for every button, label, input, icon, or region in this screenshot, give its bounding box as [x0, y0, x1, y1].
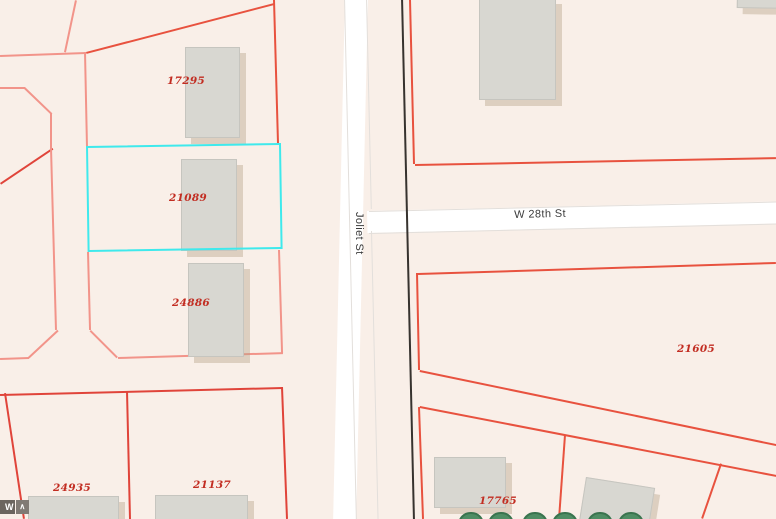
building-24886: [188, 263, 244, 357]
building-17295: [185, 47, 240, 138]
building-northeast: [479, 0, 556, 100]
parcel-boundary-line: [0, 357, 29, 360]
building-corner-ne: [737, 0, 776, 9]
parcel-boundary-line: [86, 3, 274, 53]
building-21137: [155, 495, 248, 519]
parcel-boundary-line: [410, 0, 416, 164]
parcel-label-17295: 17295: [167, 75, 205, 87]
chevron-up-icon: ∧: [19, 502, 25, 511]
parcel-label-17765: 17765: [479, 495, 517, 507]
parcel-boundary-line: [50, 113, 52, 148]
parcel-boundary-line: [559, 435, 566, 519]
parcel-boundary-line: [415, 157, 776, 165]
parcel-label-21137: 21137: [193, 479, 231, 491]
building-24935: [28, 496, 119, 519]
tree-symbol: [552, 512, 578, 519]
tree-symbol: [458, 512, 484, 519]
street-edge-line: [365, 0, 371, 209]
parcel-boundary-line: [417, 273, 421, 370]
parcel-boundary-line: [418, 262, 776, 275]
parcel-boundary-line: [0, 148, 53, 185]
street-edge-line: [371, 231, 379, 519]
tree-symbol: [488, 512, 514, 519]
parcel-boundary-line: [88, 252, 92, 330]
parcel-boundary-line: [702, 464, 722, 519]
parcel-boundary-line: [0, 387, 283, 396]
tree-symbol: [522, 512, 548, 519]
parcel-boundary-line: [51, 148, 57, 330]
parcel-boundary-line: [0, 52, 86, 57]
street-name-joliet: Joliet St: [353, 212, 365, 255]
parcel-label-21089: 21089: [169, 192, 207, 204]
panel-expand-button[interactable]: ∧: [16, 500, 29, 514]
parcel-label-24886: 24886: [172, 297, 210, 309]
parcel-boundary-line: [64, 0, 76, 52]
parcel-boundary-line: [419, 407, 425, 519]
utility-line: [401, 0, 415, 519]
street-name-w28th: W 28th St: [514, 208, 566, 221]
parcel-boundary-line: [28, 330, 58, 358]
panel-collapse-button[interactable]: W: [0, 500, 15, 514]
map-canvas[interactable]: 17295 21089 24886 21605 24935 21137 1776…: [0, 0, 776, 519]
parcel-boundary-line: [85, 52, 88, 146]
parcel-label-21605: 21605: [677, 343, 715, 355]
parcel-boundary-line: [281, 387, 288, 519]
parcel-boundary-line: [0, 87, 25, 89]
parcel-label-24935: 24935: [53, 482, 91, 494]
parcel-boundary-line: [279, 250, 284, 353]
building-southeast: [578, 477, 655, 519]
parcel-boundary-line: [420, 370, 776, 445]
parcel-boundary-line: [274, 0, 279, 143]
parcel-boundary-line: [90, 330, 118, 358]
parcel-boundary-line: [126, 391, 131, 519]
panel-collapse-label: W: [5, 502, 14, 512]
parcel-boundary-line: [24, 87, 52, 114]
